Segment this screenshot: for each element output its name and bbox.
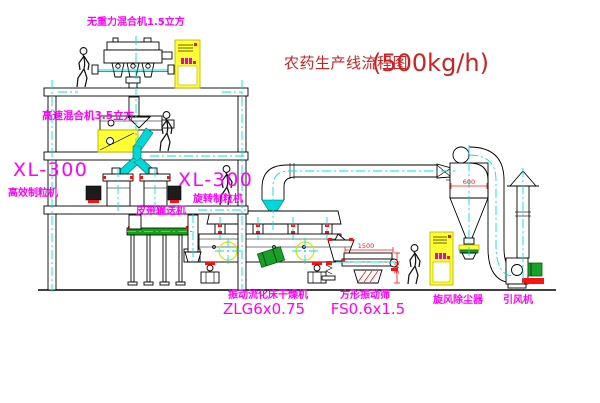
label-belt-conveyor: 皮带输送机 (135, 204, 186, 217)
gravity-free-mixer (92, 38, 174, 88)
belt-conveyor (127, 226, 191, 285)
cyclone-diameter-dim: 600 (463, 178, 475, 186)
person-ground (408, 245, 420, 284)
label-sieve-model: FS0.6x1.5 (331, 300, 405, 318)
label-granulator-right-model: XL-300 (178, 169, 253, 191)
sieve-length-dim: 1500 (358, 242, 375, 250)
label-dryer-model: ZLG6x0.75 (223, 300, 305, 318)
control-cabinet-top (175, 40, 200, 88)
label-granulator-right-name: 旋转制粒机 (192, 192, 243, 205)
fan-motor (528, 263, 542, 276)
label-granulator-left-model: XL-300 (13, 159, 88, 181)
process-flow-diagram: 600 1500 340 农药生产线流程图 (500kg/h) 无重力混合机1.… (0, 0, 600, 403)
fan (506, 258, 544, 288)
label-fan: 引风机 (503, 293, 533, 306)
person-top-floor (77, 48, 89, 87)
label-gravity-free-mixer: 无重力混合机1.5立方 (86, 15, 185, 28)
diagram-capacity: (500kg/h) (372, 49, 489, 77)
control-cabinet-ground (430, 232, 453, 285)
label-high-speed-mixer: 高速混合机3.5立方 (42, 109, 135, 122)
sieve-height-dim: 340 (393, 262, 401, 274)
label-cyclone: 旋风除尘器 (432, 293, 484, 306)
cad-drawing-canvas: 600 1500 340 农药生产线流程图 (500kg/h) 无重力混合机1.… (0, 0, 600, 403)
label-granulator-left-name: 高效制粒机 (8, 186, 58, 199)
